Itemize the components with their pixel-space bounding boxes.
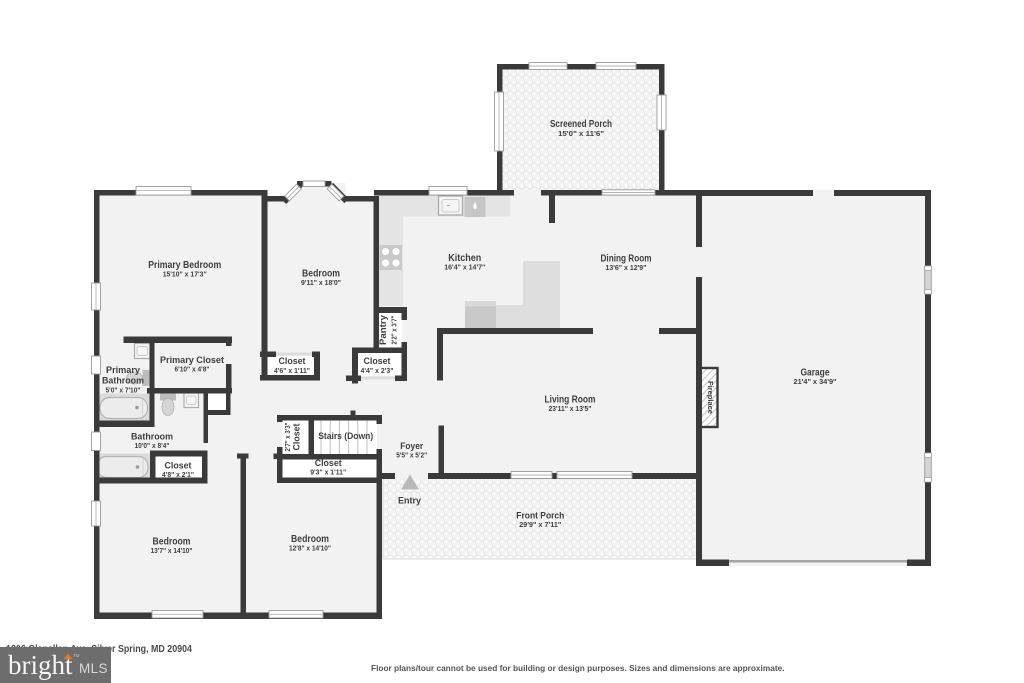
svg-text:15'10" x 17'3": 15'10" x 17'3" bbox=[163, 270, 207, 279]
svg-text:4'6" x 1'11": 4'6" x 1'11" bbox=[274, 366, 310, 375]
svg-text:13'6" x 12'9": 13'6" x 12'9" bbox=[606, 263, 647, 272]
svg-text:29'9" x 7'11": 29'9" x 7'11" bbox=[519, 520, 561, 529]
svg-text:4'4" x 2'3": 4'4" x 2'3" bbox=[361, 366, 394, 375]
svg-text:Fireplace: Fireplace bbox=[706, 381, 715, 414]
svg-text:13'7" x 14'10": 13'7" x 14'10" bbox=[151, 546, 193, 555]
svg-text:15'0" x 11'6": 15'0" x 11'6" bbox=[558, 129, 605, 138]
svg-text:Primary Closet: Primary Closet bbox=[160, 354, 224, 365]
svg-text:5'5" x 5'2": 5'5" x 5'2" bbox=[396, 451, 427, 460]
svg-text:Primary: Primary bbox=[106, 364, 141, 375]
svg-text:Closet: Closet bbox=[165, 460, 192, 471]
svg-text:9'11" x 18'0": 9'11" x 18'0" bbox=[301, 278, 341, 287]
svg-text:Pantry: Pantry bbox=[377, 314, 388, 345]
svg-text:9'3" x 1'11": 9'3" x 1'11" bbox=[310, 468, 346, 477]
svg-text:5'0" x 7'10": 5'0" x 7'10" bbox=[106, 386, 141, 395]
svg-text:Bathroom: Bathroom bbox=[102, 375, 144, 386]
svg-text:Closet: Closet bbox=[364, 355, 391, 366]
svg-text:Entry: Entry bbox=[398, 495, 422, 506]
svg-text:23'11" x 13'5": 23'11" x 13'5" bbox=[549, 404, 592, 413]
svg-text:Closet: Closet bbox=[279, 355, 306, 366]
svg-text:10'0" x 8'4": 10'0" x 8'4" bbox=[135, 441, 170, 450]
svg-text:Stairs (Down): Stairs (Down) bbox=[318, 430, 373, 441]
svg-text:Floor plans/tour cannot be use: Floor plans/tour cannot be used for buil… bbox=[371, 663, 785, 673]
svg-text:Front Porch: Front Porch bbox=[516, 510, 564, 521]
svg-text:TM: TM bbox=[73, 653, 80, 658]
svg-text:Bathroom: Bathroom bbox=[131, 431, 173, 442]
svg-text:12'8" x 14'10": 12'8" x 14'10" bbox=[289, 544, 331, 553]
svg-text:Closet: Closet bbox=[315, 457, 342, 468]
svg-text:4'8" x 2'1": 4'8" x 2'1" bbox=[162, 470, 194, 479]
svg-text:MLS: MLS bbox=[79, 661, 108, 676]
svg-text:bright: bright bbox=[8, 650, 73, 680]
svg-text:6'10" x 4'8": 6'10" x 4'8" bbox=[175, 365, 210, 374]
svg-text:2'7" x 3'3": 2'7" x 3'3" bbox=[283, 423, 292, 452]
svg-text:2'2" x 3'7": 2'2" x 3'7" bbox=[390, 316, 399, 345]
svg-text:21'4" x 34'9": 21'4" x 34'9" bbox=[794, 377, 837, 386]
svg-text:Closet: Closet bbox=[291, 424, 302, 451]
svg-text:16'4" x 14'7": 16'4" x 14'7" bbox=[444, 263, 485, 272]
svg-text:Foyer: Foyer bbox=[400, 440, 423, 451]
